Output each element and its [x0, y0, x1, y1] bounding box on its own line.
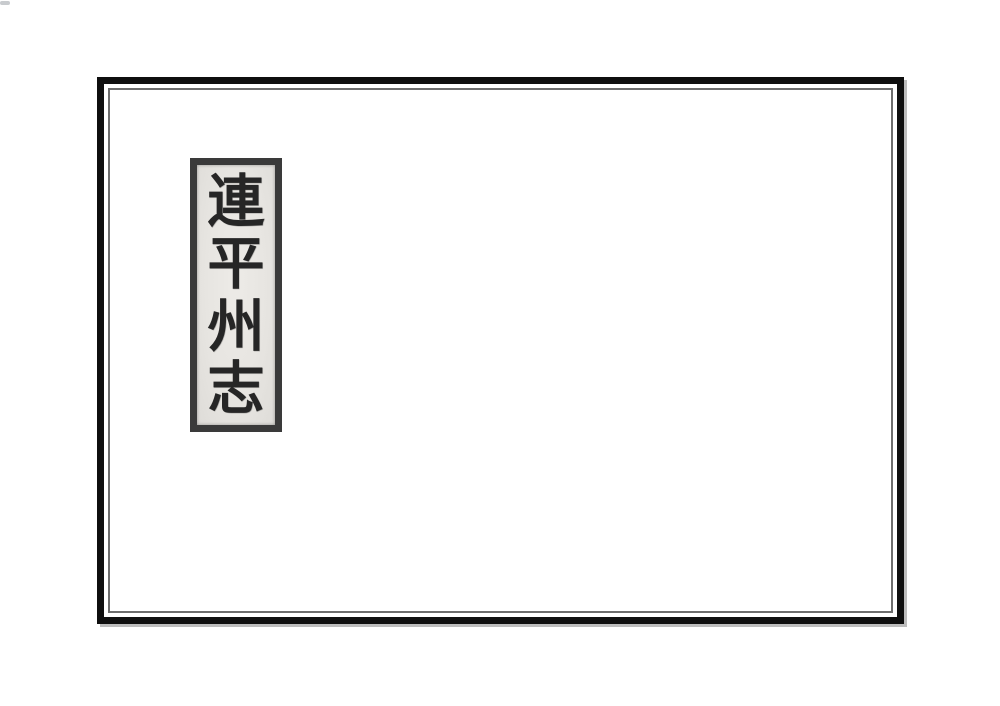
title-character-4: 志	[208, 360, 265, 417]
title-label: 連 平 州 志	[190, 158, 282, 432]
scan-artifact-speck	[0, 1, 10, 5]
title-character-3: 州	[208, 298, 265, 355]
title-character-1: 連	[208, 173, 265, 230]
title-character-2: 平	[208, 235, 265, 292]
